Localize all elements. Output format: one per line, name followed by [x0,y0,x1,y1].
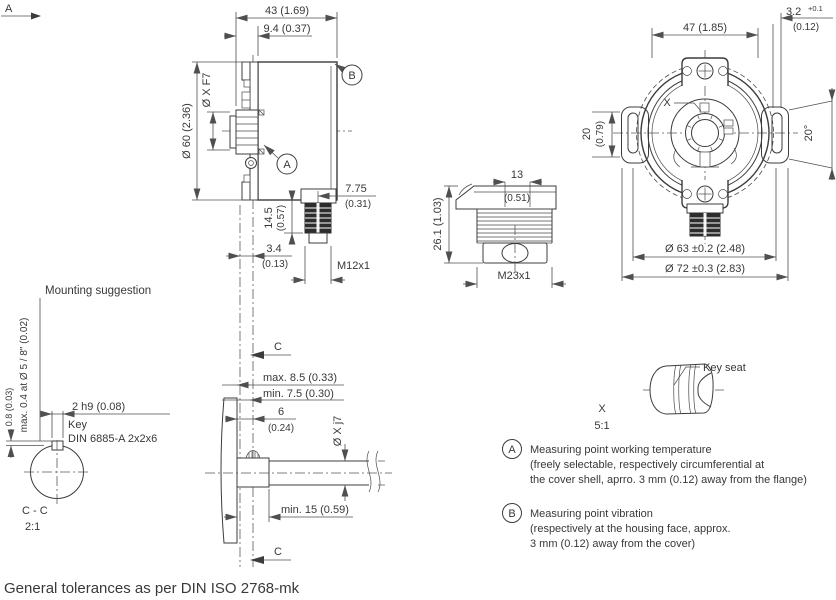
dim-key-len-in: (0.24) [268,423,294,434]
dim-slot-in: (0.79) [595,121,606,147]
balloon-a-label: A [283,159,291,171]
section-scale: 2:1 [25,521,40,533]
dim-key-height: 0.8 (0.03) [4,388,14,427]
dim-m23-width-mm: 13 [511,169,523,181]
keyway-tab-upper [724,120,733,126]
dim-angle: 20° [803,125,815,142]
shaft-end [230,116,236,148]
section-mark-top: C [274,341,282,353]
dim-bolt-circle: Ø 63 ±0.2 (2.48) [665,243,745,255]
encoder-body [258,62,337,200]
m23-thread-label: M23x1 [497,270,530,282]
note-a-id: A [508,444,516,456]
note-a-line1: Measuring point working temperature [530,444,712,456]
dim-step-in: (0.12) [793,22,819,33]
dim-min-depth: min. 7.5 (0.30) [263,388,334,400]
shaft-top-slot [700,103,709,112]
canvas-background [0,0,836,600]
mounting-tab-top [242,62,250,80]
tab-hole-left-b [683,190,692,199]
section-mark-bottom: C [274,546,282,558]
detail-mark: X [598,403,606,415]
dim-depth: 43 (1.69) [265,5,309,17]
front-m12-collar [687,204,723,213]
note-a-line3: the cover shell, aprro. 3 mm (0.12) away… [530,474,807,486]
dim-body-dia: Ø 60 (2.36) [181,103,193,159]
mounting-heading: Mounting suggestion [45,285,151,297]
dim-shaft-fit: Ø X j7 [332,416,344,447]
dim-m23-len: 26.1 (1.03) [432,197,444,250]
clamp-screw [246,158,257,169]
shaft-bottom-slot [700,152,710,167]
dim-conn-pos-in: (0.31) [345,199,371,210]
tab-hole-left [683,67,692,76]
tab-hole-right-b [719,190,728,199]
shaft-bore-circle [692,120,719,147]
m12-thread-label: M12x1 [337,260,370,272]
dim-step-tol: +0.1 [808,4,823,13]
mounting-flange-plate [221,398,237,543]
note-a-line2: (freely selectable, respectively circumf… [530,459,764,471]
encoder-dimensional-drawing: A [0,0,836,600]
shaft-clamp-block [236,110,258,154]
note-b-line3: 3 mm (0.12) away from the cover) [530,538,695,550]
key-label: Key [68,419,87,431]
general-tolerances-note: General tolerances as per DIN ISO 2768-m… [4,580,300,597]
mounting-tab-top-step [244,80,250,87]
dim-conn-len-in: (0.57) [276,205,287,231]
dim-conn-pos-mm: 7.75 [345,183,366,195]
dim-outer: Ø 72 ±0.3 (2.83) [665,263,745,275]
dim-face-mm: 3.4 [266,243,281,255]
detail-scale: 5:1 [594,420,609,432]
m12-connector-tip [309,233,327,243]
dim-face-in: (0.13) [262,259,288,270]
dim-shaft-bore: Ø X F7 [201,73,213,108]
keyway-tab-lower [724,128,733,134]
note-b-id: B [508,508,515,520]
view-direction-label: A [5,3,13,15]
section-name: C - C [22,505,48,517]
mounting-tab-bottom-step [244,175,250,182]
dim-flange-depth: 9.4 (0.37) [263,23,310,35]
dim-insert-depth: min. 15 (0.59) [281,504,349,516]
dimensional-drawing-page: A [0,0,836,600]
detail-mark-front: X [663,97,671,109]
note-b-line1: Measuring point vibration [530,508,653,520]
key-bg [52,441,63,450]
dim-runout: max. 0.4 at Ø 5 / 8" (0.02) [19,318,30,433]
dim-width: 47 (1.85) [683,22,727,34]
balloon-b-label: B [348,70,355,82]
dim-key-len-mm: 6 [278,406,284,418]
dim-slot-mm: 20 [581,128,593,140]
dim-conn-len-mm: 14.5 [263,207,275,228]
dim-step-mm: 3.2 [786,6,801,18]
dim-key-width: 2 h9 (0.08) [72,401,125,413]
key-seat-label: Key seat [703,362,746,374]
dim-m23-width-in: (0.51) [504,193,530,204]
dim-max-depth: max. 8.5 (0.33) [263,372,337,384]
tab-hole-right [719,67,728,76]
key-spec: DIN 6885-A 2x2x6 [68,433,157,445]
note-b-line2: (respectively at the housing face, appro… [530,523,731,535]
mounting-hub [237,458,269,487]
mounting-tab-bottom [242,182,250,200]
